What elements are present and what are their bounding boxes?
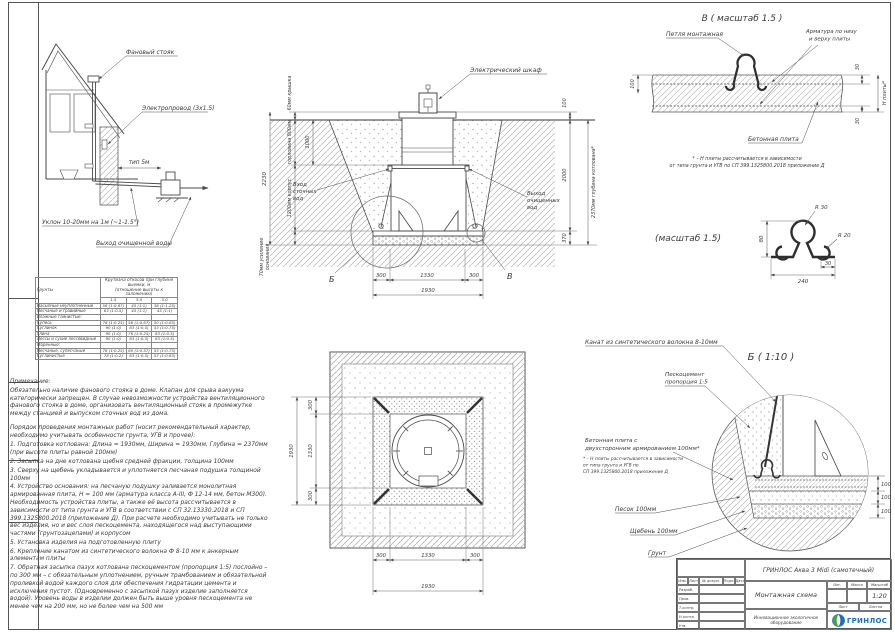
dim-neck: горловина 900мм <box>287 119 293 164</box>
cabinet-label: Электрический шкаф <box>469 67 542 74</box>
dim-r20: R 20 <box>838 233 851 239</box>
dim-h-plity: Н плиты* <box>882 80 888 105</box>
tb-role-razrab-rest <box>699 585 745 594</box>
dim-5m-label: тип 5м <box>129 160 150 166</box>
base-plate <box>373 231 483 245</box>
dim-1330: 1330 <box>420 273 434 279</box>
slope-label: Уклон 10-20мм на 1м (~1-1.5°) <box>42 219 139 226</box>
detail-b-mark: Б <box>329 275 335 284</box>
rebar-label-1: Арматура по низу <box>805 29 858 35</box>
dim-30-bot: 30 <box>855 118 861 124</box>
outlet-label-2: очищенных <box>527 198 561 204</box>
plan-view: 300 1330 300 1930 300 1330 300 1930 <box>283 335 583 620</box>
notes-heading: Примечание: <box>10 379 268 387</box>
tb-spare-row <box>677 559 745 577</box>
soil-label: Грунт <box>648 550 667 557</box>
plan-vdim-300a: 300 <box>308 399 314 410</box>
soil-slope-table: Грунты Крутизна откосов при глубине выем… <box>35 277 178 360</box>
dim-body: 1200мм корпус <box>287 178 293 217</box>
tb-logo-cell: ГРИНЛОС <box>827 611 892 630</box>
tb-role-razrab: Разраб. <box>677 585 699 594</box>
dim-300b: 300 <box>469 273 480 279</box>
brand-name: ГРИНЛОС <box>847 617 887 625</box>
clean-water-outlet-label: Выход очищенной воды <box>96 240 172 247</box>
dim-1930: 1930 <box>421 288 435 294</box>
tb-mass-value <box>847 589 867 603</box>
plan-vdim-1330: 1330 <box>308 444 314 458</box>
inlet-label-2: сточных <box>293 189 317 195</box>
table-col-main-1: Крутизна откосов при глубине выемки, м <box>105 277 173 287</box>
tb-mass-label: Масса <box>847 581 867 589</box>
dim-2000: 2000 <box>562 168 568 182</box>
wire-label: Электропровод (3х1.5) <box>141 105 215 112</box>
drawing-sheet: тип 5м Фановый стояк Электропровод (3х1.… <box>0 0 895 632</box>
rebar-label-2: и верху плиты <box>809 37 851 43</box>
dim-300a: 300 <box>376 273 387 279</box>
main-section-view: Б В Электрический шкаф Вход сточных вод … <box>255 55 655 315</box>
outlet-label-1: Выход <box>527 191 545 197</box>
tb-doc-name: Монтажная схема <box>745 581 827 609</box>
dim-370: 370 <box>562 233 568 243</box>
notes-item-4: 4. Устройство основания: на песчаную под… <box>10 484 268 538</box>
notes-block: Примечание: Обязательно наличие фанового… <box>10 379 268 613</box>
dim-r30: R 30 <box>815 205 828 211</box>
dim-240: 240 <box>798 279 809 285</box>
tb-role-tkontr-rest <box>699 603 745 612</box>
tb-role-prov-rest <box>699 594 745 603</box>
dim-100-right: 100 <box>562 98 568 108</box>
tb-litera-label: Лит. <box>827 581 847 589</box>
house-dim-5m: тип 5м <box>118 160 161 168</box>
notes-item-7: 7. Обратная засыпка пазух котлована песк… <box>10 565 268 612</box>
tb-scale-label: Масштаб <box>867 581 892 589</box>
loop-shape <box>771 221 835 260</box>
detail-v-note-1: * – Н плиты рассчитывается в зависимости <box>692 156 801 162</box>
dim-2230: 2230 <box>262 172 268 186</box>
plan-vdim-300b: 300 <box>308 490 314 501</box>
dim-30-top: 30 <box>855 64 861 70</box>
table-col-soil: Грунты <box>36 278 101 304</box>
detail-v-title: В ( масштаб 1.5 ) <box>702 14 783 24</box>
tb-scale-value: 1:20 <box>867 589 892 603</box>
dim-1000: 1000 <box>305 135 311 149</box>
table-row: Суглинистые78 (1:0.2)63 (1:0.5)57 (1:0.6… <box>36 354 178 360</box>
frame-left-cell-line1 <box>8 298 38 299</box>
detail-v-mark: В <box>507 272 513 281</box>
dim-100-left: 100 <box>630 79 636 89</box>
tb-head-izm: Изм. <box>677 577 688 585</box>
plan-dim-1930: 1930 <box>421 584 435 590</box>
detail-v-note-2: от типа грунта и УГВ по СП 399.1325800.2… <box>669 163 824 169</box>
dim-lid: 60мм крышка <box>287 76 293 111</box>
notes-item-2: 2. Засыпка на дне котлована щебня средне… <box>10 459 268 467</box>
plan-dim-1330: 1330 <box>421 553 435 559</box>
dim-base-1: 70мм усиление <box>259 238 265 277</box>
electric-cabinet <box>419 85 437 113</box>
house-septic-tank <box>156 172 208 202</box>
slab-label: Бетонная плита <box>748 136 799 143</box>
plan-dim-300a: 300 <box>376 553 387 559</box>
tb-litera-value <box>827 589 847 603</box>
detail-b-content <box>710 390 875 560</box>
tb-head-ndok: № докум. <box>699 577 723 585</box>
loop-label: Петля монтажная <box>666 31 723 38</box>
rope-label: Канат из синтетического волокна 8-10мм <box>585 339 718 346</box>
tb-head-podp: Подп. <box>723 577 735 585</box>
gravel-label: Щебень 100мм <box>630 528 678 535</box>
tb-product-name: ГРИНЛОС Аква 3 Midi (самотечный) <box>745 559 892 581</box>
tb-role-tkontr: Т.контр. <box>677 603 699 612</box>
loop-detail-title: (масштаб 1.5) <box>655 234 721 244</box>
dim-80: 80 <box>759 235 765 242</box>
tb-role-utv-rest <box>699 621 745 630</box>
slab-note-3: СП 399.1325800.2018 приложение Д <box>583 469 669 475</box>
tb-sheets-label: Листов <box>859 603 892 611</box>
sandcement-label-1: Пескоцемент <box>665 372 705 378</box>
grinlos-logo-icon <box>832 614 845 627</box>
tb-role-utv: Утв. <box>677 621 699 630</box>
outlet-label-3: вод <box>527 205 537 211</box>
detail-v-view: В ( масштаб 1.5 ) Петля монтажная Армату… <box>620 5 895 195</box>
tb-head-list: Лист <box>688 577 699 585</box>
dim-depth: 2370мм глубина котлована* <box>591 145 597 218</box>
detail-b-title: Б ( 1:10 ) <box>748 352 795 363</box>
notes-item-5: 5. Установка изделия на подготовленную п… <box>10 540 268 548</box>
notes-item-1: 1. Подготовка котлована: Длина = 1930мм,… <box>10 442 268 458</box>
loop-detail-view: (масштаб 1.5) R 30 R 20 80 30 240 <box>625 195 890 315</box>
tb-sheet-label: Лист <box>827 603 859 611</box>
sand-label: Песок 100мм <box>615 506 657 513</box>
table-col-main-2: (отношение высоты к заложению) <box>115 287 163 297</box>
dim-100-sand: 100 <box>881 495 892 501</box>
notes-para1: Обязательно наличие фанового стояка в до… <box>10 388 268 419</box>
slab-label-2: двухсторонним армированием 100мм* <box>584 446 700 452</box>
dim-30: 30 <box>825 261 831 267</box>
sandcement-label-2: пропорция 1:5 <box>665 380 708 386</box>
dim-100-plate: 100 <box>881 482 892 488</box>
dim-100-gravel: 100 <box>881 509 892 515</box>
notes-item-6: 6. Крепление канатом из синтетического в… <box>10 549 268 565</box>
table-col-main: Крутизна откосов при глубине выемки, м (… <box>101 278 178 298</box>
fan-riser-label: Фановый стояк <box>126 49 175 56</box>
tb-slogan: Инновационное экологичное оборудование <box>745 609 827 630</box>
dim-base-2: основания <box>266 244 271 271</box>
tb-role-nkontr: Н.контр. <box>677 612 699 621</box>
notes-para2: Порядок проведения монтажных работ (носи… <box>10 425 268 441</box>
tb-role-prov: Пров. <box>677 594 699 603</box>
inlet-label-3: вод <box>293 196 303 202</box>
title-block: Изм. Лист № докум. Подп. Дата Разраб. Пр… <box>676 558 891 629</box>
slab-note-1: * – Н плиты рассчитывается в зависимости <box>583 456 683 462</box>
grinlos-logo: ГРИНЛОС <box>832 614 887 627</box>
slab-label-1: Бетонная плита с <box>585 438 637 444</box>
detail-b-view: Б ( 1:10 ) <box>575 330 895 575</box>
house-sketch: тип 5м Фановый стояк Электропровод (3х1.… <box>38 22 273 274</box>
tb-head-data: Дата <box>735 577 745 585</box>
tb-role-nkontr-rest <box>699 612 745 621</box>
notes-item-3: 3. Сверху на щебень укладывается и уплот… <box>10 468 268 484</box>
slab-note-2: от типа грунта и УГВ по <box>583 463 639 469</box>
plan-dim-300b: 300 <box>470 553 481 559</box>
plan-vdim-1930: 1930 <box>289 444 295 458</box>
